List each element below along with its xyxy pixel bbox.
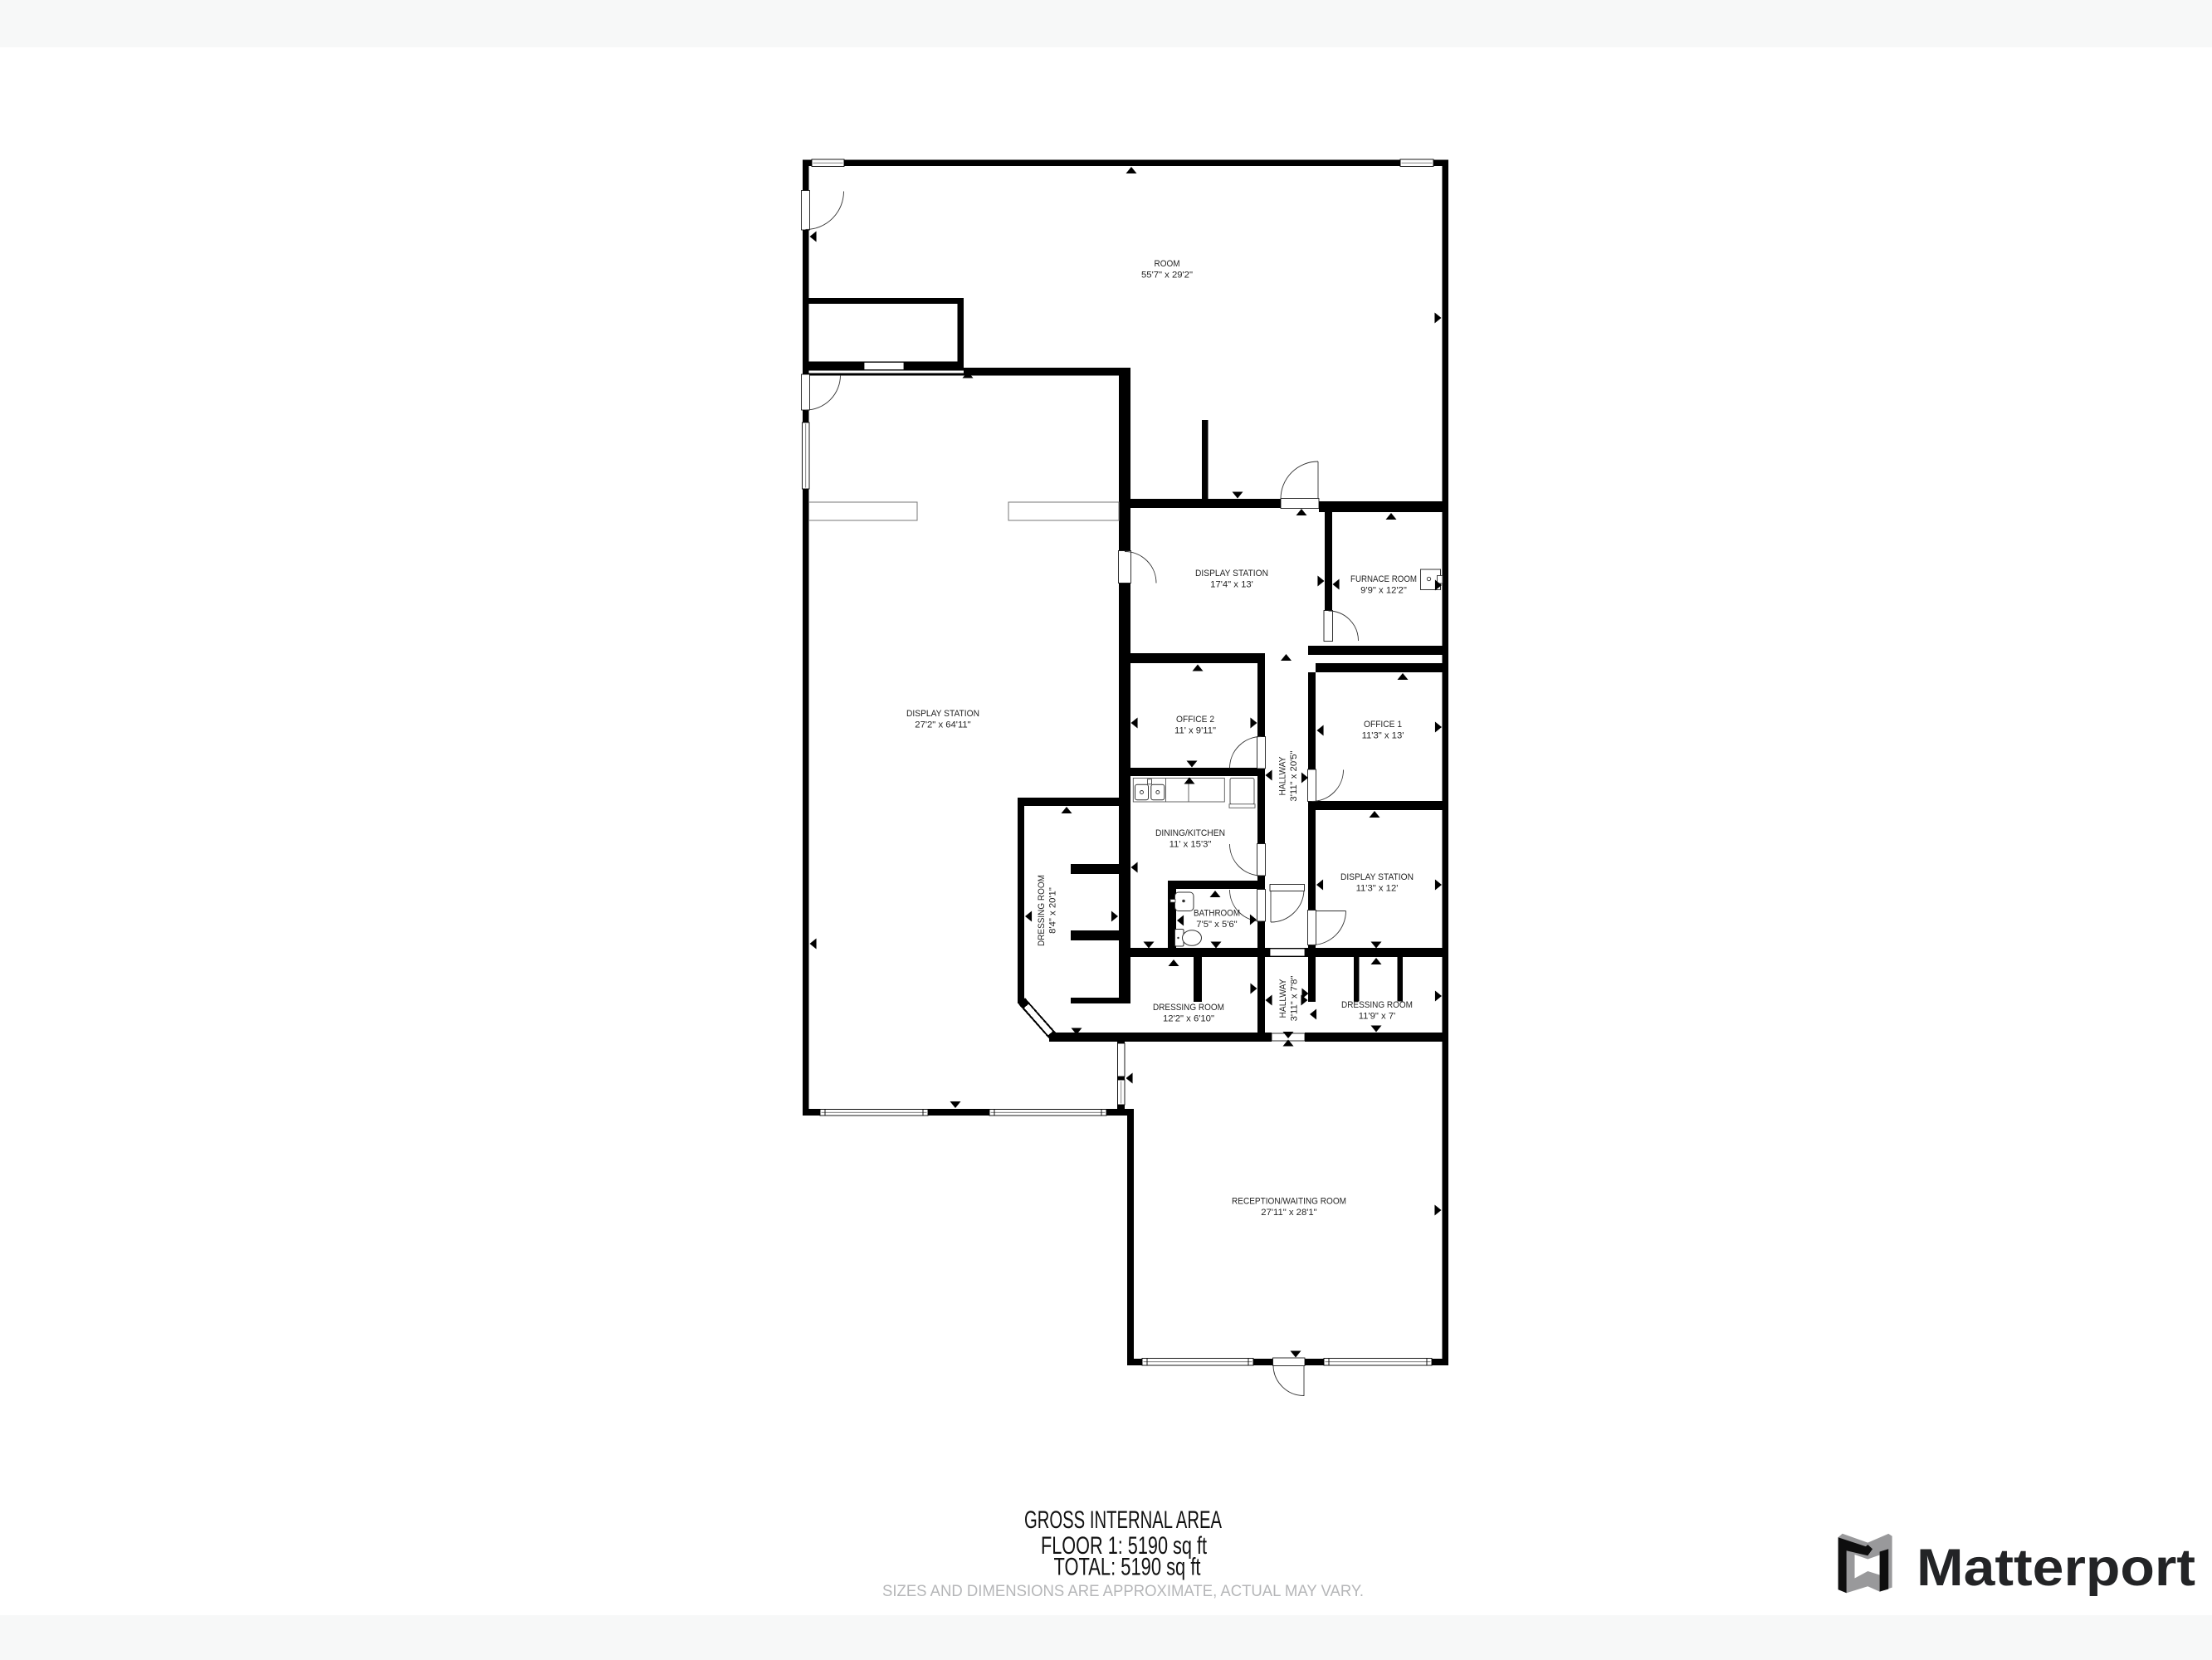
svg-text:Matterport: Matterport [1917,1539,2195,1597]
svg-text:FURNACE ROOM: FURNACE ROOM [1350,574,1417,584]
svg-text:11'9" x 7': 11'9" x 7' [1359,1012,1396,1022]
svg-text:11'3" x 13': 11'3" x 13' [1362,731,1404,741]
svg-text:DRESSING ROOM: DRESSING ROOM [1153,1003,1224,1013]
svg-text:BATHROOM: BATHROOM [1194,909,1240,919]
svg-text:SIZES AND DIMENSIONS ARE APPRO: SIZES AND DIMENSIONS ARE APPROXIMATE, AC… [882,1582,1364,1600]
svg-text:27'11" x 28'1": 27'11" x 28'1" [1261,1208,1316,1218]
svg-text:DRESSING ROOM: DRESSING ROOM [1037,875,1047,946]
svg-text:55'7" x 29'2": 55'7" x 29'2" [1141,271,1193,281]
svg-text:9'9" x 12'2": 9'9" x 12'2" [1360,586,1407,596]
svg-text:TOTAL: 5190 sq ft: TOTAL: 5190 sq ft [1054,1554,1201,1581]
svg-text:12'2" x 6'10": 12'2" x 6'10" [1163,1014,1214,1024]
svg-text:DINING/KITCHEN: DINING/KITCHEN [1155,828,1225,838]
svg-text:GROSS INTERNAL AREA: GROSS INTERNAL AREA [1024,1506,1222,1534]
svg-text:ROOM: ROOM [1155,259,1180,269]
svg-text:HALLWAY: HALLWAY [1278,756,1288,795]
svg-text:HALLWAY: HALLWAY [1278,979,1288,1018]
svg-text:DISPLAY STATION: DISPLAY STATION [1195,569,1268,579]
svg-text:27'2" x 64'11": 27'2" x 64'11" [915,720,970,730]
svg-text:DISPLAY STATION: DISPLAY STATION [906,709,979,719]
svg-text:11' x 9'11": 11' x 9'11" [1174,726,1216,736]
svg-text:DRESSING ROOM: DRESSING ROOM [1341,1000,1413,1010]
svg-text:7'5" x 5'6": 7'5" x 5'6" [1196,920,1237,930]
svg-text:11'3" x 12': 11'3" x 12' [1356,884,1399,894]
svg-text:OFFICE 1: OFFICE 1 [1364,720,1402,730]
svg-text:3'11" x 20'5": 3'11" x 20'5" [1289,750,1299,801]
svg-text:8'4" x 20'1": 8'4" x 20'1" [1048,887,1058,934]
svg-text:11' x 15'3": 11' x 15'3" [1169,840,1212,850]
svg-text:DISPLAY STATION: DISPLAY STATION [1340,872,1414,882]
svg-text:17'4" x 13': 17'4" x 13' [1210,580,1253,590]
svg-text:RECEPTION/WAITING ROOM: RECEPTION/WAITING ROOM [1232,1197,1346,1207]
svg-text:3'11" x 7'8": 3'11" x 7'8" [1290,976,1300,1022]
svg-text:OFFICE 2: OFFICE 2 [1176,715,1214,725]
